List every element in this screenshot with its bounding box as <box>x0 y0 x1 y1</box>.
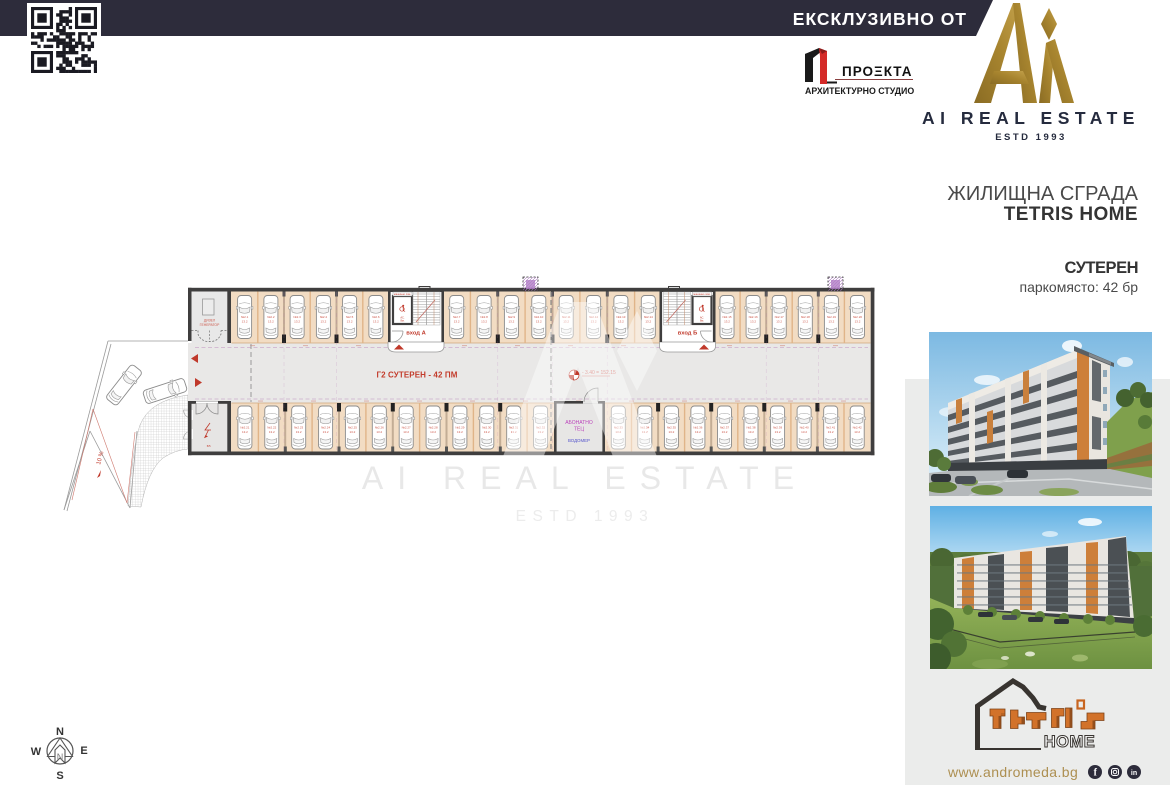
svg-text:AI REAL ESTATE: AI REAL ESTATE <box>362 460 808 496</box>
svg-text:№2.23: №2.23 <box>294 426 303 430</box>
svg-text:№2.42: №2.42 <box>853 426 862 430</box>
svg-text:13.2: 13.2 <box>508 320 514 324</box>
svg-text:ел.: ел. <box>207 444 212 448</box>
svg-text:13.2: 13.2 <box>618 320 624 324</box>
svg-text:№2.29: №2.29 <box>455 426 464 430</box>
svg-text:ТЕЦ: ТЕЦ <box>574 427 584 433</box>
svg-text:№2.30: №2.30 <box>482 426 491 430</box>
svg-text:№2.13: №2.13 <box>616 315 625 319</box>
svg-text:№2.41: №2.41 <box>826 426 835 430</box>
svg-text:№2.37: №2.37 <box>720 426 729 430</box>
svg-text:13.2: 13.2 <box>242 320 248 324</box>
svg-text:13.2: 13.2 <box>750 320 756 324</box>
svg-text:13.2: 13.2 <box>268 320 274 324</box>
svg-text:13.2: 13.2 <box>403 430 409 434</box>
svg-text:№2.4: №2.4 <box>320 315 328 319</box>
svg-text:13.2: 13.2 <box>695 430 701 434</box>
svg-text:№2.7: №2.7 <box>453 315 461 319</box>
svg-text:13.2: 13.2 <box>376 430 382 434</box>
svg-text:№2.22: №2.22 <box>267 426 276 430</box>
svg-text:13.2: 13.2 <box>748 430 754 434</box>
svg-text:13.2: 13.2 <box>775 430 781 434</box>
svg-text:№2.3: №2.3 <box>293 315 301 319</box>
svg-text:Г2 СУТЕРЕН - 42 ПМ: Г2 СУТЕРЕН - 42 ПМ <box>377 371 458 380</box>
svg-text:13.2: 13.2 <box>828 430 834 434</box>
svg-text:№2.14: №2.14 <box>644 315 653 319</box>
svg-text:№2.39: №2.39 <box>773 426 782 430</box>
svg-text:13.2: 13.2 <box>722 430 728 434</box>
svg-text:№2.18: №2.18 <box>801 315 810 319</box>
svg-text:13.2: 13.2 <box>320 320 326 324</box>
svg-text:ВОДОМЕР: ВОДОМЕР <box>568 438 590 443</box>
svg-text:№2.24: №2.24 <box>321 426 330 430</box>
svg-text:№2.16: №2.16 <box>749 315 758 319</box>
svg-text:13.2: 13.2 <box>801 430 807 434</box>
svg-text:13.2: 13.2 <box>269 430 275 434</box>
svg-text:№2.26: №2.26 <box>375 426 384 430</box>
svg-text:№2.19: №2.19 <box>827 315 836 319</box>
svg-text:№2.20: №2.20 <box>853 315 862 319</box>
svg-text:№2.15: №2.15 <box>722 315 731 319</box>
svg-text:№2.6: №2.6 <box>372 315 380 319</box>
svg-text:№2.27: №2.27 <box>402 426 411 430</box>
svg-text:№2.1: №2.1 <box>241 315 249 319</box>
svg-text:13.2: 13.2 <box>484 430 490 434</box>
svg-text:13.2: 13.2 <box>828 320 834 324</box>
svg-text:13.2: 13.2 <box>454 320 460 324</box>
svg-text:13.2: 13.2 <box>373 320 379 324</box>
svg-text:13.2: 13.2 <box>724 320 730 324</box>
svg-text:13.2: 13.2 <box>645 320 651 324</box>
svg-text:13.2: 13.2 <box>294 320 300 324</box>
svg-text:8м.: 8м. <box>700 319 704 323</box>
svg-text:13.2: 13.2 <box>776 320 782 324</box>
svg-text:№2.40: №2.40 <box>800 426 809 430</box>
svg-text:машинно пом.: машинно пом. <box>394 293 411 296</box>
svg-text:№2.2: №2.2 <box>267 315 275 319</box>
svg-text:13.2: 13.2 <box>802 320 808 324</box>
svg-text:машинно пом.: машинно пом. <box>693 293 710 296</box>
svg-text:№2.17: №2.17 <box>775 315 784 319</box>
svg-text:вход А: вход А <box>406 331 426 337</box>
svg-text:13.2: 13.2 <box>854 430 860 434</box>
svg-text:13.2: 13.2 <box>349 430 355 434</box>
svg-text:№2.10: №2.10 <box>534 315 543 319</box>
svg-text:13.2: 13.2 <box>347 320 353 324</box>
svg-text:№2.35: №2.35 <box>667 426 676 430</box>
svg-text:13.2: 13.2 <box>668 430 674 434</box>
svg-text:13.2: 13.2 <box>430 430 436 434</box>
svg-text:HOME: HOME <box>1044 733 1096 751</box>
svg-text:ESTD 1993: ESTD 1993 <box>516 508 655 525</box>
svg-text:13.2: 13.2 <box>481 320 487 324</box>
svg-text:№2.21: №2.21 <box>240 426 249 430</box>
svg-text:№2.25: №2.25 <box>348 426 357 430</box>
svg-text:13.2: 13.2 <box>855 320 861 324</box>
svg-text:13.2: 13.2 <box>323 430 329 434</box>
svg-text:№2.5: №2.5 <box>346 315 354 319</box>
svg-text:ГЕНЕРАТОР: ГЕНЕРАТОР <box>200 323 220 327</box>
svg-text:13.2: 13.2 <box>296 430 302 434</box>
svg-text:№2.38: №2.38 <box>746 426 755 430</box>
svg-text:8м.: 8м. <box>401 319 405 323</box>
svg-text:вход Б: вход Б <box>678 331 698 337</box>
svg-text:АБОНАТНО: АБОНАТНО <box>565 420 593 426</box>
svg-text:13.2: 13.2 <box>457 430 463 434</box>
svg-text:№2.8: №2.8 <box>480 315 488 319</box>
svg-text:№2.9: №2.9 <box>508 315 516 319</box>
svg-text:13.2: 13.2 <box>536 320 542 324</box>
svg-text:13.2: 13.2 <box>242 430 248 434</box>
svg-text:№2.28: №2.28 <box>429 426 438 430</box>
svg-text:in: in <box>1131 770 1137 777</box>
svg-text:№2.36: №2.36 <box>693 426 702 430</box>
